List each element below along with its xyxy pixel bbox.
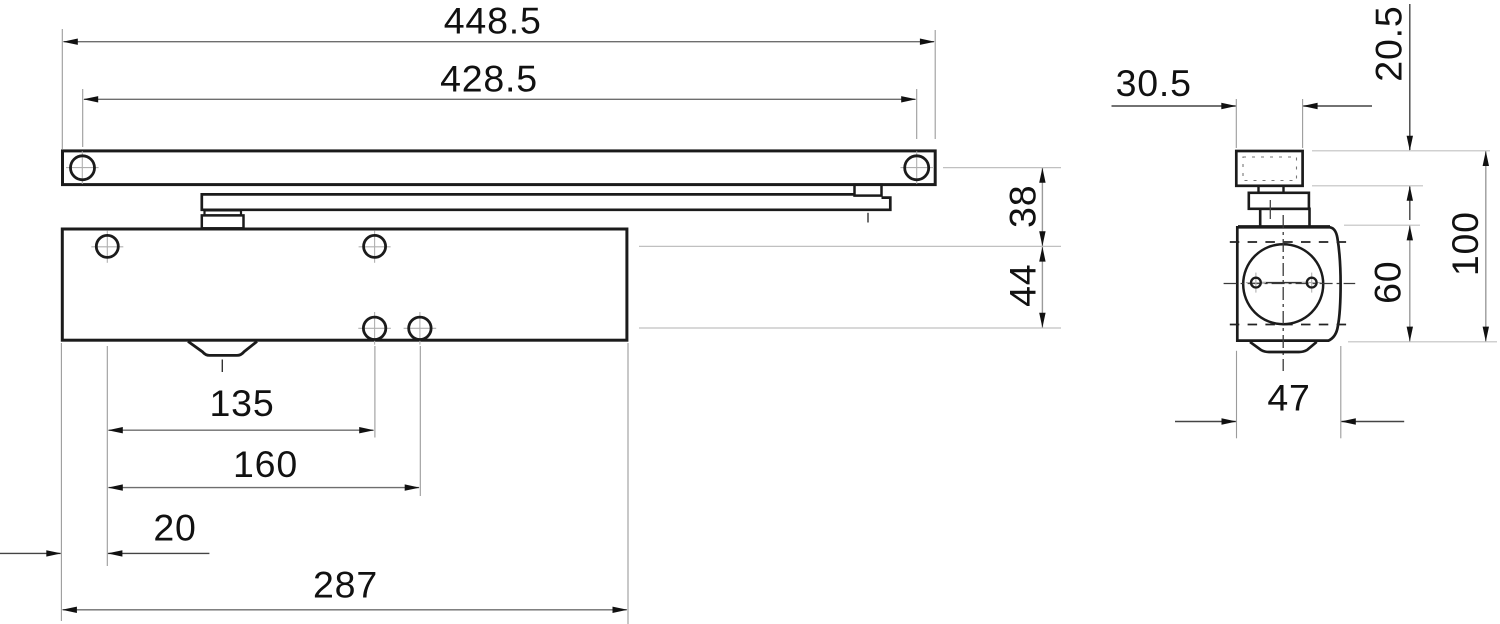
svg-text:47: 47: [1267, 377, 1310, 419]
svg-text:100: 100: [1444, 211, 1486, 276]
svg-text:60: 60: [1367, 261, 1409, 304]
svg-text:287: 287: [313, 564, 378, 606]
svg-text:38: 38: [1002, 185, 1044, 228]
svg-text:44: 44: [1002, 264, 1044, 307]
svg-text:20: 20: [153, 507, 196, 549]
svg-text:30.5: 30.5: [1116, 62, 1192, 104]
svg-text:20.5: 20.5: [1368, 6, 1410, 82]
svg-text:135: 135: [210, 382, 275, 424]
svg-text:448.5: 448.5: [444, 0, 542, 42]
svg-text:160: 160: [233, 443, 298, 485]
svg-text:428.5: 428.5: [440, 58, 538, 100]
